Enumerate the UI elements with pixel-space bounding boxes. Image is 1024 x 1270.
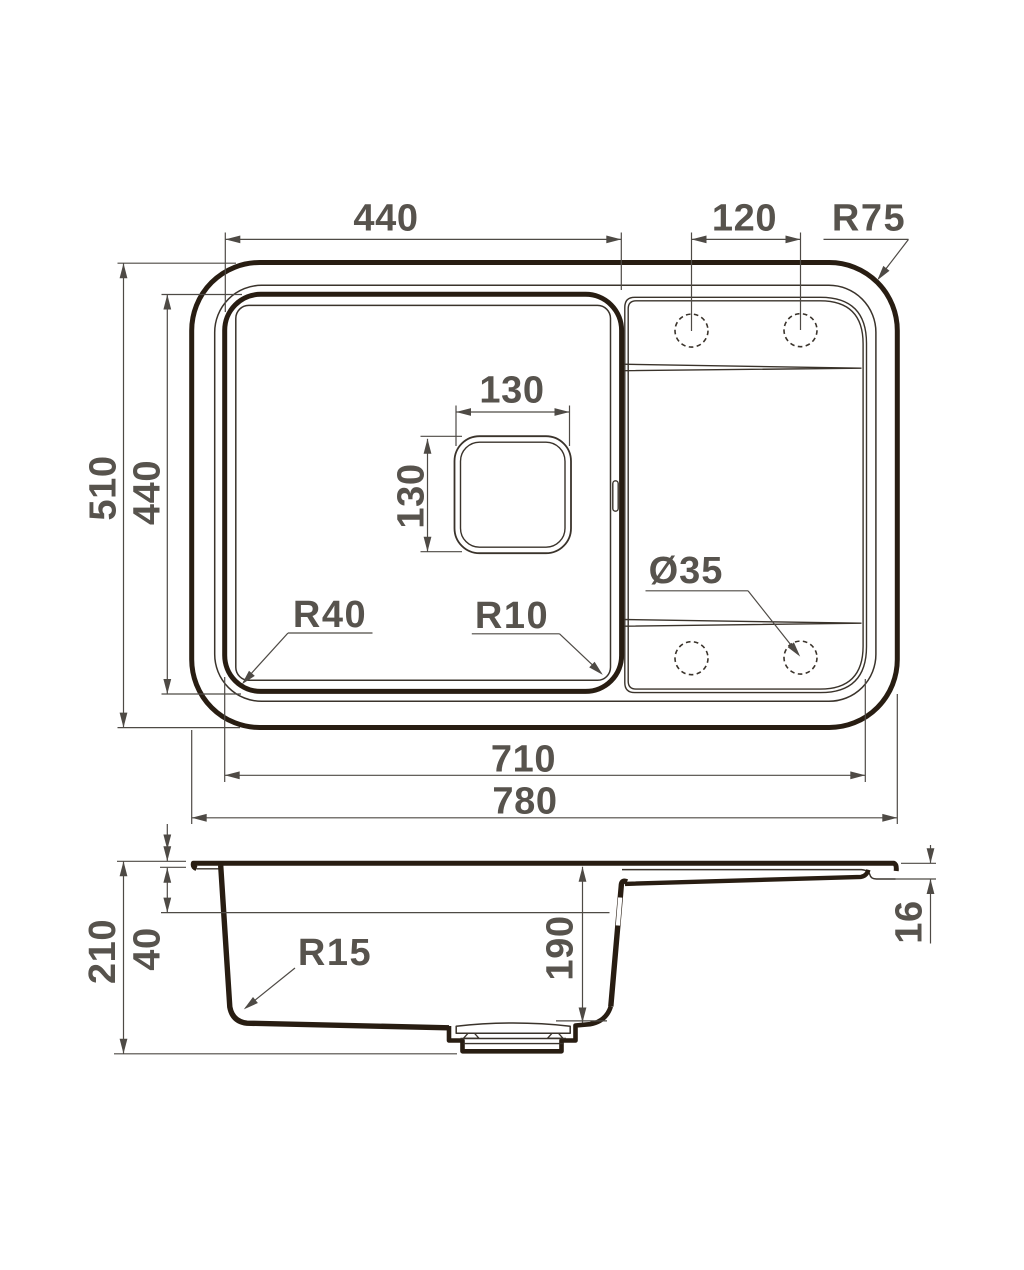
svg-text:130: 130 (391, 463, 433, 528)
svg-text:780: 780 (492, 781, 557, 823)
svg-text:440: 440 (353, 198, 418, 240)
svg-text:R75: R75 (832, 198, 906, 240)
svg-text:710: 710 (491, 739, 556, 781)
svg-text:120: 120 (712, 198, 777, 240)
svg-text:130: 130 (479, 370, 544, 412)
svg-text:440: 440 (127, 460, 169, 525)
svg-text:40: 40 (127, 927, 169, 970)
svg-text:210: 210 (82, 919, 124, 984)
svg-text:190: 190 (540, 915, 582, 980)
svg-text:16: 16 (889, 900, 931, 943)
svg-text:Ø35: Ø35 (649, 550, 724, 592)
svg-text:510: 510 (83, 455, 125, 520)
svg-text:R10: R10 (475, 595, 549, 637)
svg-text:R40: R40 (293, 594, 367, 636)
svg-text:R15: R15 (298, 932, 372, 974)
